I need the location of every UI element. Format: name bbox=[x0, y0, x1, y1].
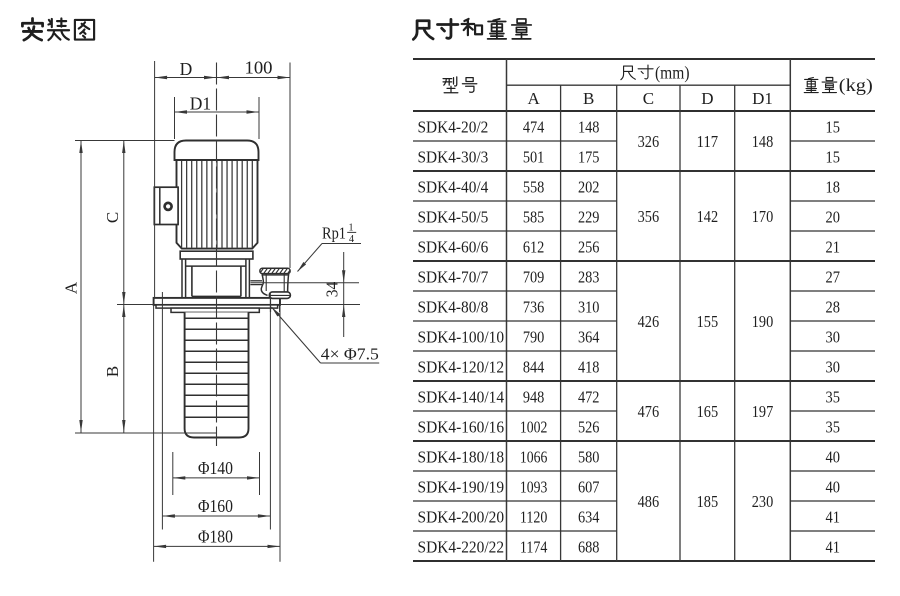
svg-text:SDK4-160/16: SDK4-160/16 bbox=[418, 417, 505, 436]
svg-text:100: 100 bbox=[245, 58, 273, 78]
svg-text:A: A bbox=[62, 281, 81, 294]
svg-text:Φ180: Φ180 bbox=[198, 527, 233, 547]
svg-text:D: D bbox=[180, 59, 193, 79]
svg-text:SDK4-200/20: SDK4-200/20 bbox=[418, 507, 505, 526]
svg-text:D1: D1 bbox=[752, 89, 773, 108]
svg-text:326: 326 bbox=[638, 132, 660, 151]
svg-text:SDK4-180/18: SDK4-180/18 bbox=[418, 447, 505, 466]
svg-text:35: 35 bbox=[825, 387, 840, 406]
svg-text:486: 486 bbox=[638, 492, 660, 511]
svg-text:1093: 1093 bbox=[520, 477, 548, 496]
svg-text:28: 28 bbox=[825, 297, 840, 316]
svg-text:SDK4-30/3: SDK4-30/3 bbox=[418, 147, 489, 166]
svg-text:170: 170 bbox=[752, 207, 774, 226]
svg-text:418: 418 bbox=[578, 357, 600, 376]
svg-text:580: 580 bbox=[578, 447, 600, 466]
svg-text:B: B bbox=[103, 366, 122, 377]
svg-text:(mm): (mm) bbox=[655, 62, 690, 82]
svg-text:15: 15 bbox=[825, 117, 840, 136]
svg-text:20: 20 bbox=[825, 207, 840, 226]
svg-text:607: 607 bbox=[578, 477, 600, 496]
svg-text:736: 736 bbox=[523, 297, 545, 316]
svg-text:SDK4-120/12: SDK4-120/12 bbox=[418, 357, 505, 376]
svg-text:117: 117 bbox=[697, 132, 719, 151]
svg-text:21: 21 bbox=[825, 237, 840, 256]
svg-text:1174: 1174 bbox=[520, 537, 548, 556]
svg-text:SDK4-190/19: SDK4-190/19 bbox=[418, 477, 505, 496]
svg-text:197: 197 bbox=[752, 402, 774, 421]
svg-text:1120: 1120 bbox=[520, 507, 548, 526]
svg-text:Φ140: Φ140 bbox=[198, 458, 233, 478]
svg-text:148: 148 bbox=[578, 117, 600, 136]
svg-text:844: 844 bbox=[523, 357, 545, 376]
svg-text:688: 688 bbox=[578, 537, 600, 556]
svg-text:709: 709 bbox=[523, 267, 545, 286]
svg-text:230: 230 bbox=[752, 492, 774, 511]
svg-text:C: C bbox=[643, 89, 654, 108]
svg-text:Rp1: Rp1 bbox=[322, 224, 346, 243]
svg-text:185: 185 bbox=[697, 492, 719, 511]
svg-text:Φ160: Φ160 bbox=[198, 496, 233, 516]
svg-text:SDK4-70/7: SDK4-70/7 bbox=[418, 267, 489, 286]
svg-text:426: 426 bbox=[638, 312, 660, 331]
svg-text:4× Φ7.5: 4× Φ7.5 bbox=[321, 345, 379, 364]
svg-text:30: 30 bbox=[825, 357, 840, 376]
svg-text:1: 1 bbox=[348, 223, 353, 234]
svg-text:SDK4-140/14: SDK4-140/14 bbox=[418, 387, 505, 406]
svg-text:SDK4-20/2: SDK4-20/2 bbox=[418, 117, 489, 136]
svg-text:229: 229 bbox=[578, 207, 600, 226]
svg-text:27: 27 bbox=[825, 267, 840, 286]
svg-text:558: 558 bbox=[523, 177, 545, 196]
svg-text:A: A bbox=[527, 89, 540, 108]
svg-text:34: 34 bbox=[323, 282, 342, 298]
svg-text:1066: 1066 bbox=[520, 447, 548, 466]
svg-text:41: 41 bbox=[825, 537, 840, 556]
svg-text:40: 40 bbox=[825, 447, 840, 466]
svg-text:501: 501 bbox=[523, 147, 545, 166]
svg-text:SDK4-60/6: SDK4-60/6 bbox=[418, 237, 489, 256]
svg-text:612: 612 bbox=[523, 237, 545, 256]
svg-text:474: 474 bbox=[523, 117, 545, 136]
svg-text:SDK4-220/22: SDK4-220/22 bbox=[418, 537, 505, 556]
svg-text:476: 476 bbox=[638, 402, 660, 421]
svg-text:15: 15 bbox=[825, 147, 840, 166]
svg-text:D1: D1 bbox=[190, 94, 211, 114]
svg-text:310: 310 bbox=[578, 297, 600, 316]
svg-text:41: 41 bbox=[825, 507, 840, 526]
svg-text:40: 40 bbox=[825, 477, 840, 496]
svg-text:356: 356 bbox=[638, 207, 660, 226]
svg-text:283: 283 bbox=[578, 267, 600, 286]
svg-text:202: 202 bbox=[578, 177, 600, 196]
svg-text:948: 948 bbox=[523, 387, 545, 406]
svg-text:526: 526 bbox=[578, 417, 600, 436]
svg-text:D: D bbox=[701, 89, 713, 108]
svg-text:18: 18 bbox=[825, 177, 840, 196]
svg-text:155: 155 bbox=[697, 312, 719, 331]
svg-text:148: 148 bbox=[752, 132, 774, 151]
svg-text:B: B bbox=[583, 89, 594, 108]
svg-text:1002: 1002 bbox=[520, 417, 548, 436]
svg-text:472: 472 bbox=[578, 387, 600, 406]
svg-text:30: 30 bbox=[825, 327, 840, 346]
svg-text:SDK4-40/4: SDK4-40/4 bbox=[418, 177, 489, 196]
svg-text:SDK4-80/8: SDK4-80/8 bbox=[418, 297, 489, 316]
svg-text:790: 790 bbox=[523, 327, 545, 346]
svg-text:C: C bbox=[103, 212, 122, 223]
svg-text:175: 175 bbox=[578, 147, 600, 166]
svg-text:190: 190 bbox=[752, 312, 774, 331]
svg-text:SDK4-50/5: SDK4-50/5 bbox=[418, 207, 489, 226]
svg-text:634: 634 bbox=[578, 507, 600, 526]
svg-text:142: 142 bbox=[697, 207, 719, 226]
svg-text:(kg): (kg) bbox=[839, 75, 873, 95]
svg-text:364: 364 bbox=[578, 327, 600, 346]
svg-text:SDK4-100/10: SDK4-100/10 bbox=[418, 327, 505, 346]
svg-text:256: 256 bbox=[578, 237, 600, 256]
svg-text:165: 165 bbox=[697, 402, 719, 421]
svg-text:35: 35 bbox=[825, 417, 840, 436]
svg-text:585: 585 bbox=[523, 207, 545, 226]
